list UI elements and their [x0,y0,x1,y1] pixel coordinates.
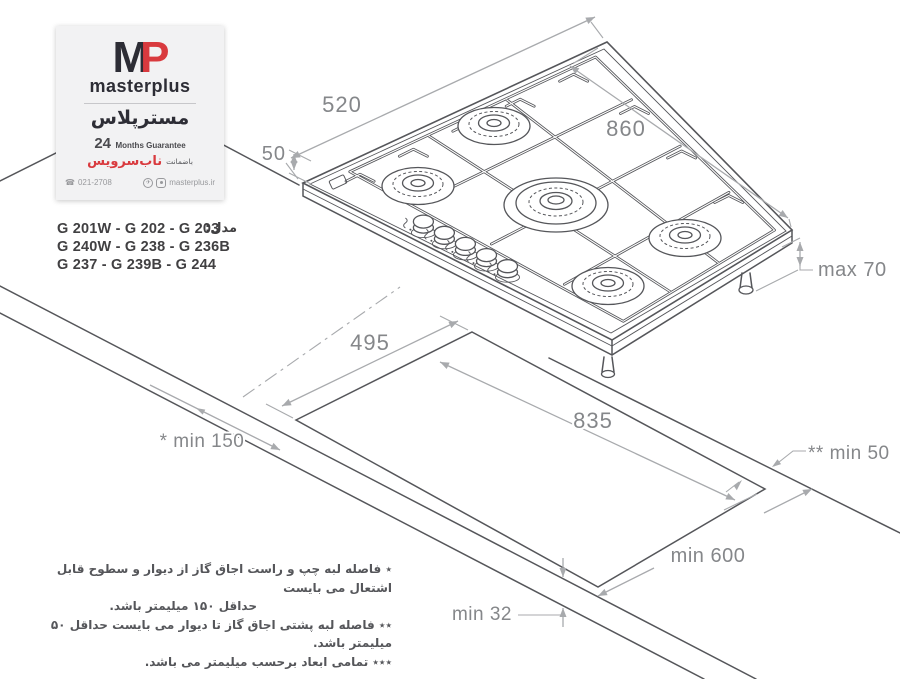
hob-width-label: 860 [606,116,646,141]
cutout-depth-label: 495 [350,330,390,355]
model-row: G 237 - G 239B - G 244 [57,256,257,274]
footnote-line: ٭٭ فاصله لبه پشتی اجاق گاز تا دیوار می ب… [28,616,392,653]
instagram-icon [156,178,166,188]
rear-clearance-label: ** min 50 [808,443,890,464]
warranty-line: باضمانت ناب‌سرویس [87,154,193,169]
warranty-prefix: باضمانت [166,157,193,166]
website: masterplus.ir [169,178,215,187]
telegram-icon: ✈ [143,178,153,188]
burner-back-right [649,220,721,257]
model-list: G 201W - G 202 - G 203 G 240W - G 238 - … [57,220,257,274]
rear-clearance-dim [726,451,806,492]
model-row: G 201W - G 202 - G 203 [57,220,257,238]
counter-thickness-label: min 32 [452,604,512,625]
installation-diagram: 520 860 50 max 70 495 835 * min 150 ** m… [0,0,900,679]
footnote-line: ٭٭٭ تمامی ابعاد برحسب میلیمتر می باشد. [28,653,392,672]
counter-thickness-dim [518,558,563,627]
counter-depth-dim [598,489,812,596]
model-row: G 240W - G 238 - G 236B [57,238,257,256]
cutout-width-label: 835 [573,408,613,433]
brand-name-fa: مسترپلاس [91,108,189,130]
web-group: ✈ masterplus.ir [143,178,215,188]
burner-center-wok [504,178,608,232]
burner-front-left [382,168,454,205]
card-divider [84,103,196,104]
contact-row: ☎ 021-2708 ✈ masterplus.ir [65,178,215,188]
cutout-width-dim [440,362,757,510]
counter-depth-label: min 600 [671,545,746,567]
brand-logo: MP [112,36,167,80]
phone-group: ☎ 021-2708 [65,178,112,187]
hob-depth-label: 520 [322,92,362,117]
logo-letter-p: P [140,33,167,82]
max-height-label: max 70 [818,259,887,281]
brand-card: MP masterplus مسترپلاس 24 Months Guarant… [56,26,224,200]
cooktop-foot-right [739,273,753,294]
side-clearance-label: * min 150 [160,431,245,452]
cooktop [303,42,792,378]
warranty-brand: ناب‌سرویس [87,154,162,169]
phone-number: 021-2708 [78,178,112,187]
brand-name: masterplus [89,76,190,97]
cooktop-foot-front [602,357,615,378]
edge-height-dim [289,150,311,184]
guarantee-line: 24 Months Guarantee [94,135,185,153]
phone-icon: ☎ [65,178,75,187]
footnote-line: ٭ فاصله لبه چپ و راست اجاق گاز از دیوار … [28,560,392,597]
burner-back-left [458,108,530,145]
footnotes: ٭ فاصله لبه چپ و راست اجاق گاز از دیوار … [28,560,392,672]
guarantee-text: Months Guarantee [115,141,185,150]
footnote-line: حداقل ۱۵۰ میلیمتر باشد. [28,597,392,616]
burner-front-right [572,268,644,305]
guarantee-number: 24 [94,135,111,152]
edge-height-label: 50 [262,143,286,165]
